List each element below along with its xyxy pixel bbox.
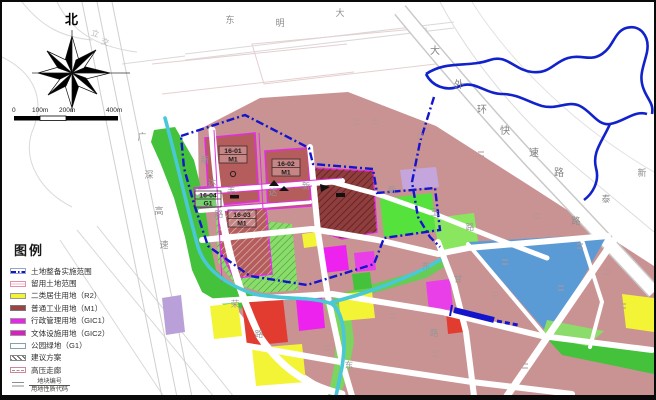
scale-tick: 200m [59, 107, 75, 114]
legend-item-culture-gic2: 文体设施用地（GIC2） [10, 327, 142, 339]
plot-label-16-03: 16-03 M1 [228, 210, 256, 228]
road-label: 路 [554, 166, 564, 179]
industrial-m1-swatch [10, 305, 26, 311]
road-label: 速 [159, 240, 168, 250]
road-label: 大 [430, 44, 440, 57]
road-label: 路 [255, 329, 264, 339]
residential-r2-swatch [10, 293, 26, 299]
scale-bar: 0 100m 200m 400m [12, 107, 122, 121]
road-label: 深 [144, 170, 153, 180]
road-label: 路 [466, 222, 475, 232]
parcel-magenta-2 [354, 251, 376, 272]
parcel-16-02 [265, 148, 311, 209]
legend-item-boundary: 土地整备实施范围 [10, 265, 142, 277]
road-label: 外 [454, 79, 464, 91]
plot-label-16-02: 16-02 M1 [272, 159, 300, 177]
hv-corridor-swatch [10, 367, 26, 373]
road-label: 环 [477, 105, 487, 116]
legend-item-plot-code: 地块编号 用地性质代码 [10, 377, 142, 395]
road-label: 甘 [454, 274, 463, 284]
road-label: 东 [345, 360, 354, 370]
road-label: 快 [500, 125, 510, 137]
parcel-yellow-east [622, 294, 654, 332]
parcel-lavender-north [400, 167, 439, 190]
park-g1-swatch [10, 343, 26, 349]
road-label: 新 [388, 185, 397, 195]
legend: 图例 土地整备实施范围 留用土地范围 二类居住用地（R2） 普通工业用地（M1）… [10, 240, 142, 395]
legend-item-industrial-m1: 普通工业用地（M1） [10, 302, 142, 314]
reserved-land-swatch [10, 281, 26, 287]
legend-item-reserved-land: 留用土地范围 [10, 277, 142, 289]
svg-text:16-03: 16-03 [233, 212, 251, 219]
svg-text:G1: G1 [203, 201, 212, 208]
planning-map-frame: 东 明 大 大 外 环 快 速 路 新 泰 路 广 深 高 速 新 达 路 丰 … [0, 0, 656, 400]
svg-text:M1: M1 [237, 221, 247, 228]
road-label: 路 [215, 209, 224, 219]
legend-item-residential-r2: 二类居住用地（R2） [10, 290, 142, 302]
road-label: 达 [269, 187, 278, 197]
compass-rose: 北 [32, 12, 130, 112]
road-label: 东 [225, 14, 234, 25]
legend-item-hv-corridor: 高压走廊 [10, 364, 142, 376]
legend-item-proposal: 建议方案 [10, 352, 142, 364]
road-label: 新 [302, 181, 311, 191]
plot-code-label: 地块编号 用地性质代码 [29, 378, 70, 393]
proposal-swatch [10, 355, 26, 361]
plot-label-16-04: 16-04 G1 [195, 191, 221, 208]
svg-text:16-02: 16-02 [277, 161, 295, 168]
scale-tick: 400m [106, 107, 122, 114]
svg-text:16-01: 16-01 [224, 148, 242, 155]
parcel-green-small [352, 272, 372, 290]
north-label: 北 [65, 12, 78, 27]
road-label: 东 [422, 261, 431, 271]
road-label: 路 [430, 328, 439, 338]
legend-title: 图例 [14, 240, 142, 259]
svg-text:16-04: 16-04 [199, 193, 217, 200]
road-label: 泰 [601, 193, 610, 204]
road-label: 立 [90, 27, 101, 39]
road-label: 丰 [227, 185, 236, 195]
plot-code-swatch [12, 382, 24, 389]
road-label: 路 [571, 215, 580, 226]
road-label: 明 [275, 18, 284, 28]
svg-text:M1: M1 [228, 157, 238, 164]
scale-tick: 0 [12, 107, 16, 114]
road-label: 速 [529, 147, 539, 159]
road-label: 达 [208, 178, 217, 188]
road-label: 新 [637, 167, 646, 178]
road-label: 大 [335, 7, 344, 18]
boundary-line-swatch [10, 268, 26, 274]
road-label: 玉 [431, 207, 440, 217]
road-label: 高 [154, 205, 163, 216]
legend-item-admin-gic1: 行政管理用地（GIC1） [10, 315, 142, 327]
road-label: 新 [201, 155, 210, 165]
admin-gic1-swatch [10, 318, 26, 324]
culture-gic2-swatch [10, 330, 26, 336]
plot-label-16-01: 16-01 M1 [219, 146, 247, 164]
scale-tick: 100m [32, 107, 48, 114]
road-label: 荣 [231, 299, 240, 309]
road-label: 广 [137, 131, 146, 142]
svg-text:M1: M1 [281, 170, 291, 177]
parcel-lavender-southwest [162, 295, 185, 335]
legend-item-park-g1: 公园绿地（G1） [10, 339, 142, 351]
